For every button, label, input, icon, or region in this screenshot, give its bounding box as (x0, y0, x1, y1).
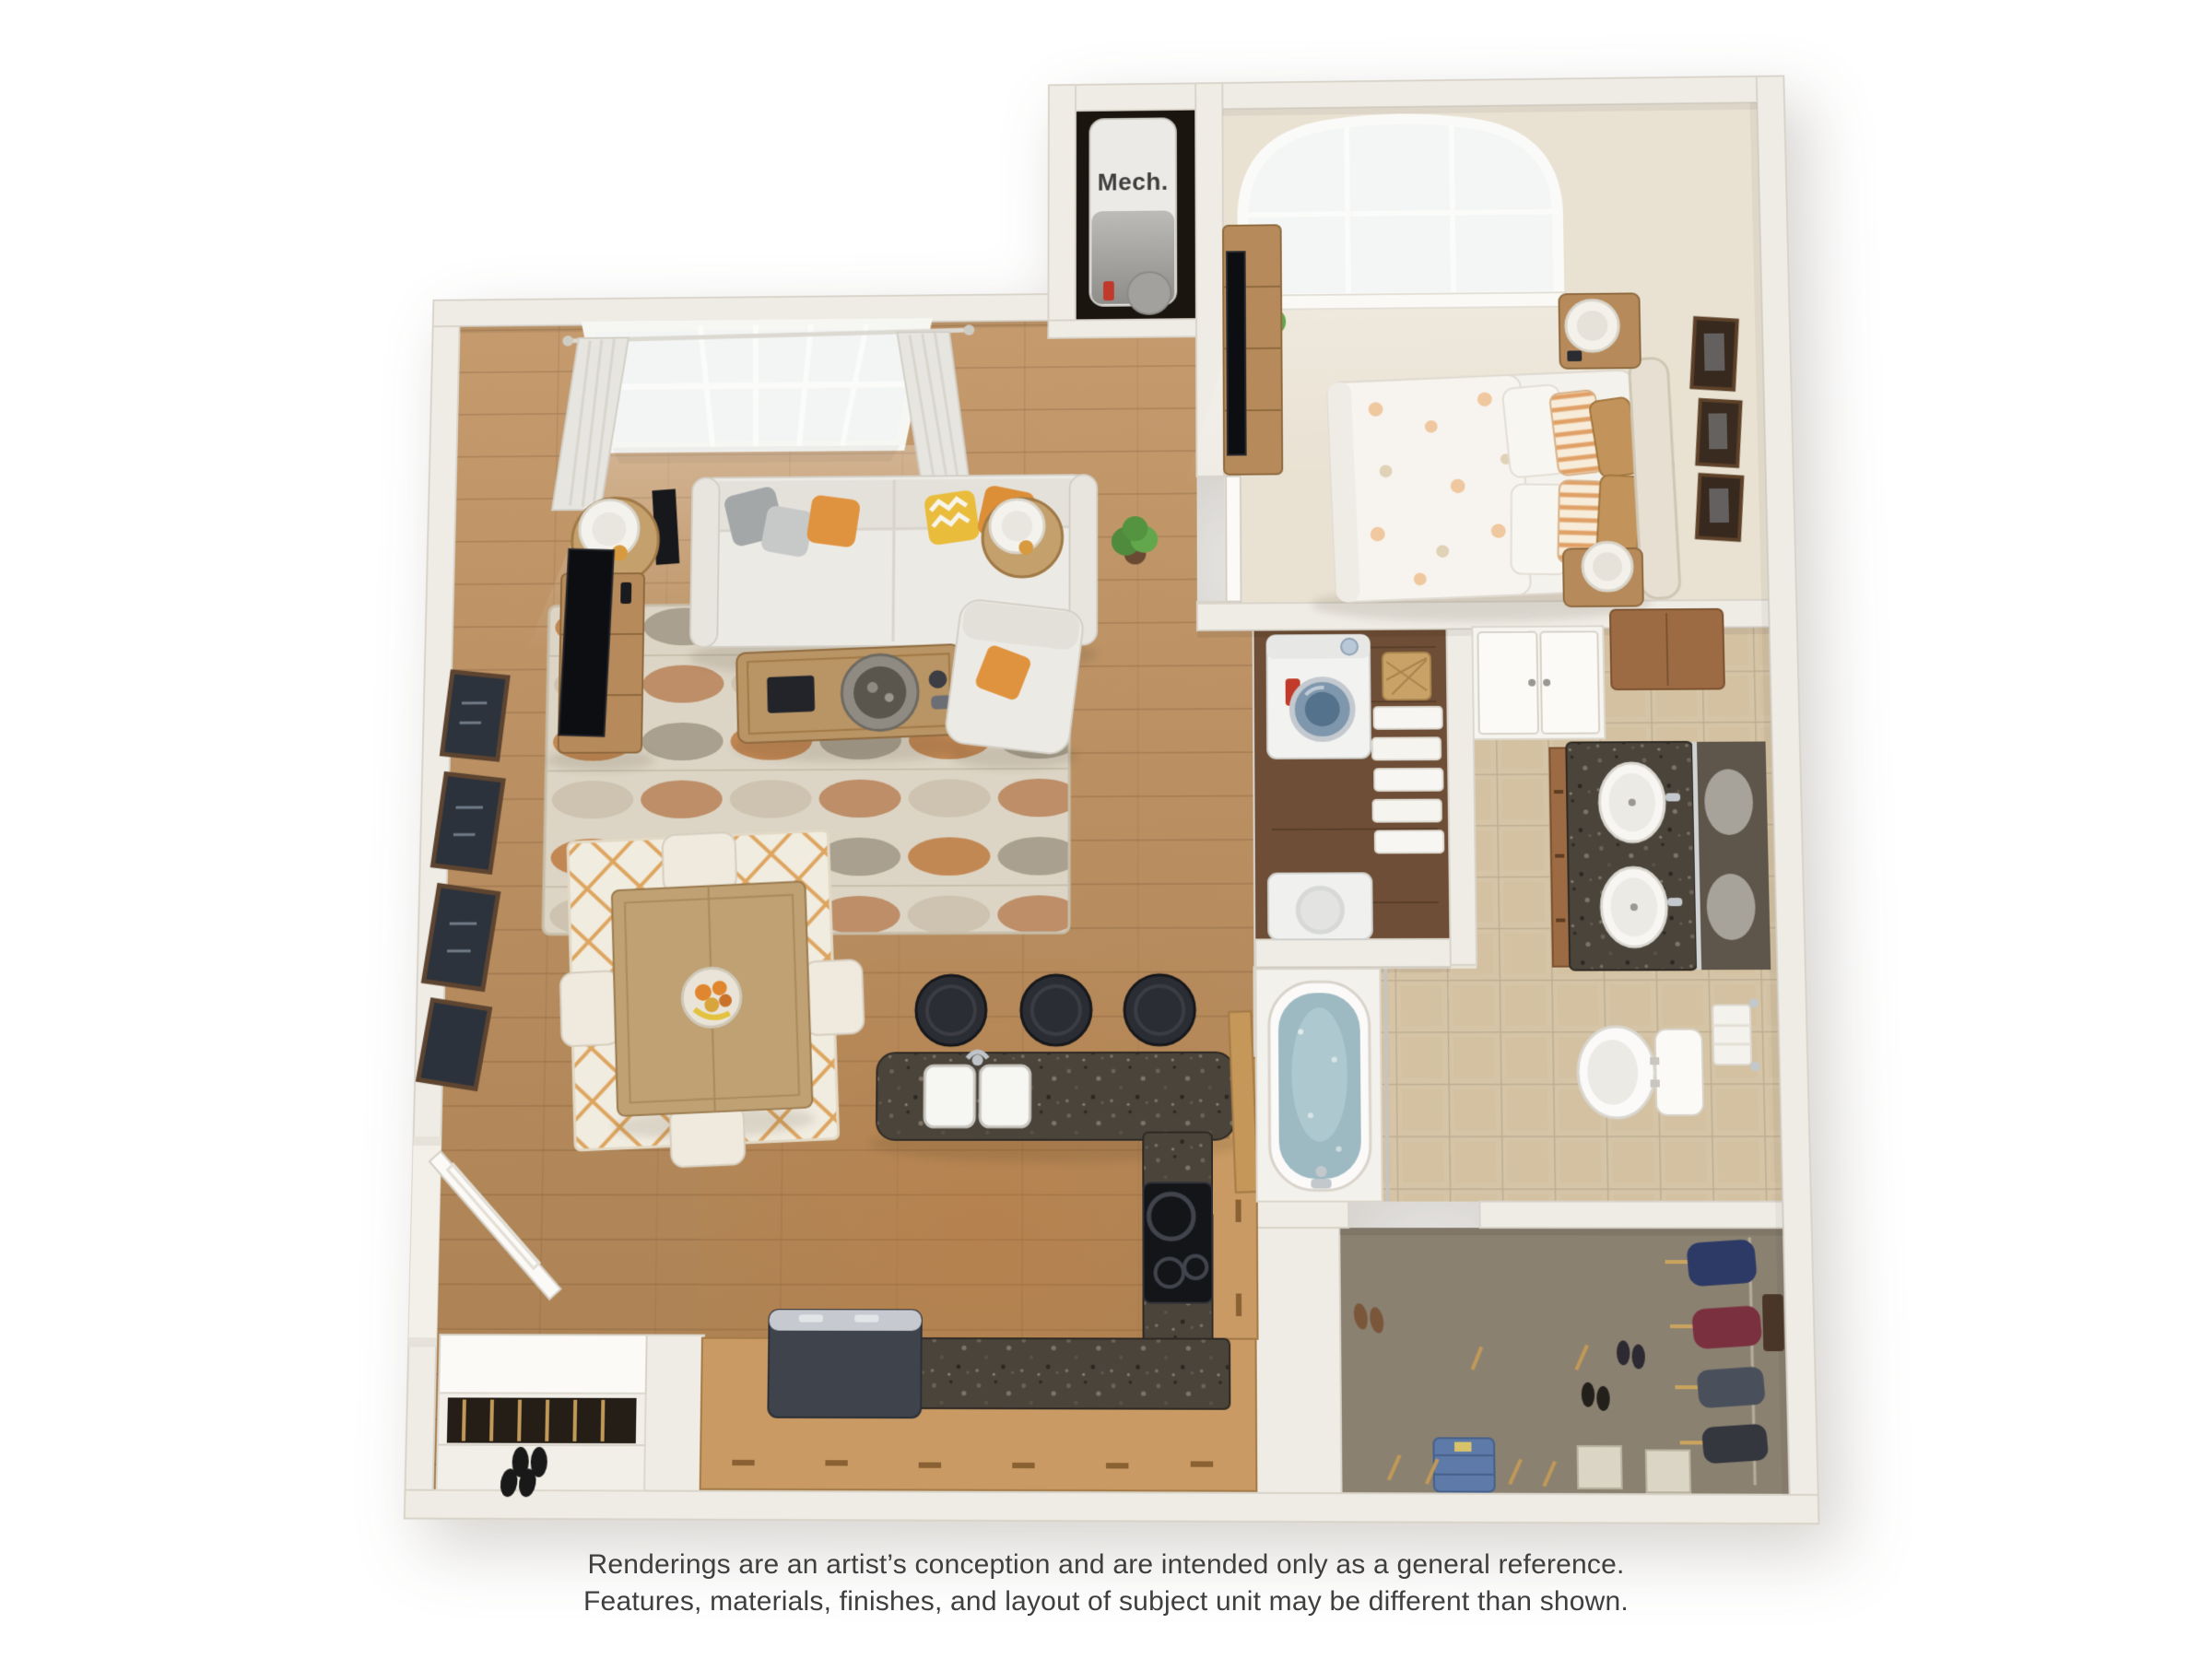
tv (559, 549, 614, 736)
dining-chair-left (560, 971, 620, 1046)
pillow-silver (760, 505, 815, 559)
tub-faucet (1311, 1179, 1331, 1188)
wall-mech-left (1048, 85, 1076, 338)
front-door-opening (408, 1142, 441, 1339)
faucet (972, 1054, 983, 1065)
side-table-right (982, 498, 1063, 577)
heater-disc (1127, 272, 1171, 314)
wall-entry-divider (644, 1335, 704, 1491)
tablet (767, 676, 815, 713)
dining-area (557, 826, 868, 1171)
entry-closet (436, 1393, 645, 1499)
pillow-orange-left (806, 494, 861, 548)
floor-plan: Mech. (0, 18, 2212, 1659)
floor-plan-wrapper: Mech. (0, 18, 2212, 1659)
bathtub (1255, 969, 1382, 1201)
bag (1762, 1294, 1784, 1351)
bedroom-door (1226, 477, 1241, 602)
folded-jeans (1433, 1438, 1494, 1491)
bar-stools (916, 975, 1195, 1046)
armchair (944, 598, 1085, 756)
dining-chair-bottom (670, 1105, 746, 1168)
tv-console (559, 548, 645, 753)
entry-counter (439, 1335, 647, 1394)
disclaimer-line-1: Renderings are an artist’s conception an… (0, 1547, 2212, 1583)
storage-box (1646, 1450, 1690, 1492)
disclaimer: Renderings are an artist’s conception an… (0, 1547, 2212, 1620)
toilet (1577, 1027, 1703, 1118)
linen-closet (1472, 626, 1605, 739)
nightstand-bottom (1563, 542, 1643, 606)
dining-chair-right (803, 959, 864, 1036)
dining-table (612, 881, 813, 1115)
wall-closet-left-block (1255, 1228, 1342, 1493)
disclaimer-line-2: Features, materials, finishes, and layou… (0, 1583, 2212, 1620)
alarm-clock (1567, 350, 1582, 361)
arched-window (1235, 117, 1566, 310)
mech-label: Mech. (1098, 168, 1169, 195)
nightstand-top (1559, 293, 1641, 369)
cooktop (1143, 1182, 1212, 1302)
wall-bath-closet-a (1255, 1202, 1349, 1229)
wall-art-frames-bedroom (1690, 318, 1744, 541)
mech-closet: Mech. (1089, 118, 1176, 314)
wall-bottom (405, 1490, 1819, 1524)
wall-laundry-bottom (1255, 939, 1451, 968)
double-vanity (1549, 741, 1771, 970)
shower-rod (1385, 969, 1387, 1201)
counter-bottom (906, 1338, 1230, 1409)
floral-duvet (1327, 375, 1531, 603)
bedroom-tv (1227, 252, 1246, 454)
red-valve (1103, 281, 1114, 300)
coffee-table (736, 644, 962, 743)
wall-bath-closet-b (1479, 1202, 1783, 1229)
storage-box (1578, 1446, 1622, 1488)
remote (620, 582, 631, 604)
refrigerator (768, 1310, 922, 1418)
dresser (1223, 225, 1282, 475)
wall-cabinet (1610, 609, 1724, 689)
washer (1266, 635, 1371, 759)
dryer (1268, 873, 1372, 939)
pillow-zigzag (924, 489, 981, 546)
